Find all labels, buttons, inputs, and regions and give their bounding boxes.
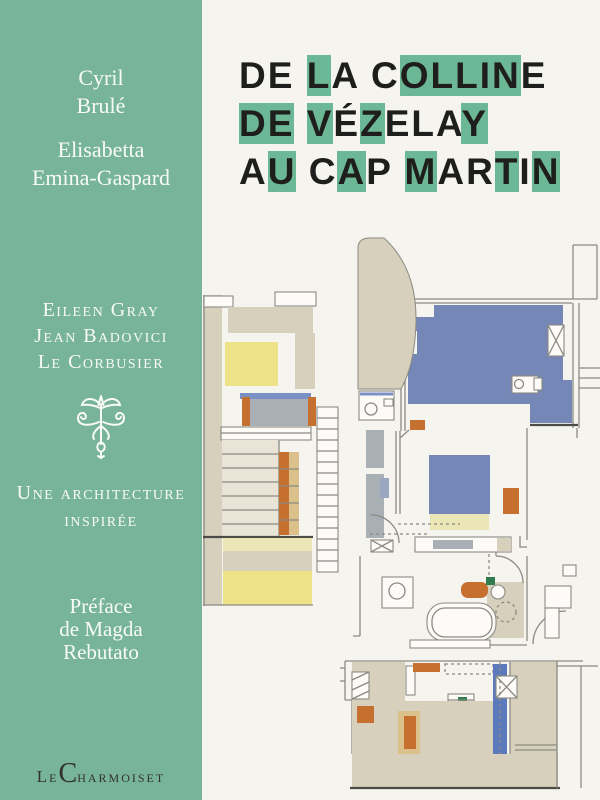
fleuron-icon bbox=[71, 392, 131, 462]
title-letter: A bbox=[239, 151, 268, 192]
author-line: Cyril bbox=[0, 64, 202, 92]
title-letter: L bbox=[455, 55, 480, 96]
author-name: Cyril Brulé bbox=[0, 64, 202, 120]
subject-line: Jean Badovici bbox=[0, 323, 202, 349]
title-letter: T bbox=[495, 151, 520, 192]
title-letter: E bbox=[521, 55, 548, 96]
title-letter: D bbox=[239, 103, 268, 144]
title-letter: A bbox=[337, 151, 366, 192]
subject-line: Le Corbusier bbox=[0, 349, 202, 375]
plan-unit-top-right bbox=[358, 238, 600, 438]
preface-line: Préface bbox=[0, 595, 202, 618]
author-line: Brulé bbox=[0, 92, 202, 120]
title-letter bbox=[359, 55, 371, 96]
title-letter: A bbox=[436, 103, 461, 144]
title-letter: E bbox=[268, 55, 295, 96]
title-letter: E bbox=[268, 103, 295, 144]
floor-plan-illustration bbox=[202, 225, 600, 800]
title-letter: E bbox=[385, 103, 412, 144]
title-letter: V bbox=[307, 103, 334, 144]
title-letter bbox=[294, 103, 306, 144]
title-letter: L bbox=[307, 55, 332, 96]
title-letter: C bbox=[371, 55, 400, 96]
title-letter: Y bbox=[461, 103, 488, 144]
title-letter bbox=[294, 55, 306, 96]
title-letter: Z bbox=[360, 103, 385, 144]
publisher-initial: C bbox=[59, 758, 78, 789]
tagline: Une architecture inspirée bbox=[0, 480, 202, 534]
book-cover: Cyril Brulé Elisabetta Emina-Gaspard Eil… bbox=[0, 0, 600, 800]
title-letter: P bbox=[366, 151, 392, 192]
title-letter: A bbox=[437, 151, 466, 192]
subject-line: Eileen Gray bbox=[0, 297, 202, 323]
title-letter: L bbox=[411, 103, 436, 144]
title-line-3: AU CAP MARTIN bbox=[239, 148, 560, 196]
title-letter: I bbox=[519, 151, 531, 192]
title-letter: N bbox=[492, 55, 521, 96]
subject-names: Eileen Gray Jean Badovici Le Corbusier bbox=[0, 297, 202, 375]
title-letter: A bbox=[331, 55, 358, 96]
title-letter: C bbox=[309, 151, 338, 192]
title-line-1: DE LA COLLINE bbox=[239, 52, 560, 100]
title-letter: O bbox=[400, 55, 431, 96]
title-letter: I bbox=[480, 55, 492, 96]
plan-center bbox=[353, 420, 576, 645]
title-letter bbox=[296, 151, 308, 192]
title-letter: R bbox=[466, 151, 495, 192]
publisher-logo: LeCharmoiset bbox=[0, 758, 202, 790]
title-letter: U bbox=[268, 151, 297, 192]
author-line: Elisabetta bbox=[0, 136, 202, 164]
sidebar: Cyril Brulé Elisabetta Emina-Gaspard Eil… bbox=[0, 0, 202, 800]
publisher-prefix: Le bbox=[37, 767, 59, 786]
ornament-wrap bbox=[0, 392, 202, 467]
title-letter: É bbox=[333, 103, 360, 144]
title-letter: N bbox=[532, 151, 561, 192]
title-line-2: DE VÉZELAY bbox=[239, 100, 560, 148]
plan-unit-top-left bbox=[203, 292, 384, 606]
title-letter: L bbox=[430, 55, 455, 96]
preface-line: Rebutato bbox=[0, 641, 202, 664]
tagline-line: inspirée bbox=[0, 507, 202, 534]
tagline-line: Une architecture bbox=[0, 480, 202, 507]
book-title: DE LA COLLINE DE VÉZELAY AU CAP MARTIN bbox=[239, 52, 560, 196]
author-line: Emina-Gaspard bbox=[0, 164, 202, 192]
title-letter: D bbox=[239, 55, 268, 96]
author-name: Elisabetta Emina-Gaspard bbox=[0, 136, 202, 192]
plan-unit-bottom bbox=[340, 640, 598, 789]
preface-line: de Magda bbox=[0, 618, 202, 641]
publisher-rest: harmoiset bbox=[77, 767, 165, 786]
preface-credit: Préface de Magda Rebutato bbox=[0, 595, 202, 664]
title-letter bbox=[392, 151, 404, 192]
title-letter: M bbox=[405, 151, 438, 192]
